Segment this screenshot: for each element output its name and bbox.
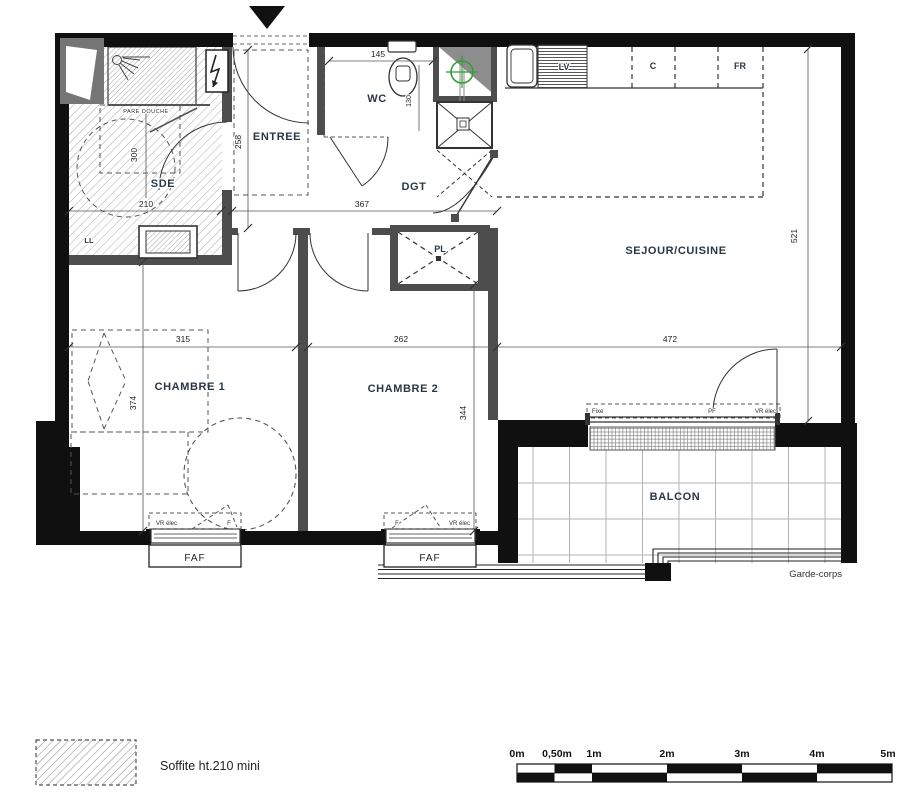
floor-plan-svg: SDE ENTREE WC DGT SEJOUR/CUISINE CHAMBRE… [0,0,909,800]
wc-door-arc [362,137,388,186]
label-placard: PL [434,244,446,254]
entrance-marker-triangle [249,6,285,29]
railing-post [645,563,671,581]
floor-plan-canvas: SDE ENTREE WC DGT SEJOUR/CUISINE CHAMBRE… [0,0,909,800]
dim-sde-width: 210 [139,199,153,209]
dim-chambre2-width: 262 [394,334,408,344]
label-lave-linge: LL [84,236,94,245]
room-label-wc: WC [367,93,387,105]
placard-closet [398,232,478,284]
label-vr-elec-sejour: VR élec [755,409,776,415]
label-vr-elec-faf1: VR élec [156,521,177,527]
label-faf-2: FAF [419,553,440,564]
label-refrigerateur: FR [734,61,746,71]
label-faf-1: FAF [184,553,205,564]
corner-window [60,38,104,104]
room-label-sde: SDE [151,178,175,190]
washing-machine [139,226,197,258]
label-pare-douche: PARE DOUCHE [123,109,168,115]
scale-bar-segments [517,764,892,782]
chambre2-door [310,233,368,291]
legend-soffite-swatch [36,740,136,785]
scale-label-2m: 2m [659,748,674,760]
room-label-dgt: DGT [401,181,426,193]
entrance-opening-dashes [233,36,309,44]
dim-dgt-width: 367 [355,199,369,209]
dim-wc-depth: 130 [406,95,413,107]
dim-chambre1-height: 374 [128,396,138,410]
dim-sde-height: 300 [129,148,139,162]
dim-chambre2-height: 344 [458,406,468,420]
label-f-1: F [227,521,231,527]
entrance-door-arc [233,47,309,123]
balcony-door [713,349,777,413]
chambre1-door [238,233,296,291]
balcony-grille [590,427,775,450]
scale-label-4m: 4m [809,748,824,760]
scale-label-1m: 1m [586,748,601,760]
room-label-chambre1: CHAMBRE 1 [155,381,226,393]
room-label-sejour-cuisine: SEJOUR/CUISINE [625,245,726,257]
wc-door-leaf [330,137,362,186]
duct-box-cross [437,102,492,197]
label-cuisson: C [650,61,657,71]
legend: Soffite ht.210 mini [36,740,260,785]
room-label-chambre2: CHAMBRE 2 [368,383,439,395]
dim-wc-width: 145 [371,49,385,59]
scale-label-3m: 3m [734,748,749,760]
scale-label-050m: 0,50m [542,748,572,760]
label-pf: PF [708,409,716,415]
sejour-window [585,404,780,450]
scale-label-0m: 0m [509,748,524,760]
toilet [388,41,417,96]
scale-bar: 0m 0,50m 1m 2m 3m 4m 5m [509,748,895,782]
electrical-panel-icon [206,50,228,92]
balcony-floor [518,447,841,563]
chambre1-wardrobe [71,330,208,494]
wc-partition [324,50,388,186]
room-label-entree: ENTREE [253,131,301,143]
faf2-wedge [392,505,440,528]
label-lave-vaisselle: LV [559,62,570,72]
dim-chambre1-width: 315 [176,334,190,344]
dim-sejour-width: 472 [663,334,677,344]
label-f-2: F [395,521,399,527]
dim-entree-depth: 258 [233,135,243,149]
legend-soffite-label: Soffite ht.210 mini [160,759,260,773]
label-vr-elec-faf2: VR élec [449,521,470,527]
scale-label-5m: 5m [880,748,895,760]
room-label-balcon: BALCON [650,491,701,503]
dim-sejour-height: 521 [789,229,799,243]
kitchen-counter [497,45,763,197]
label-fixe: Fixe [592,409,604,415]
label-garde-corps: Garde-corps [789,569,842,580]
